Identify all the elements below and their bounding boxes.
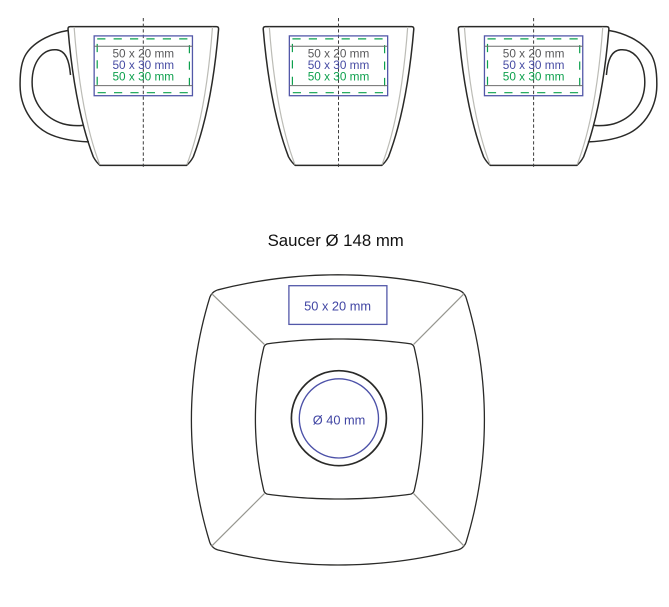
- svg-text:Saucer Ø 148 mm: Saucer Ø 148 mm: [268, 231, 404, 250]
- svg-text:Ø 40 mm: Ø 40 mm: [313, 412, 366, 427]
- svg-text:50 x 20 mm: 50 x 20 mm: [304, 299, 371, 314]
